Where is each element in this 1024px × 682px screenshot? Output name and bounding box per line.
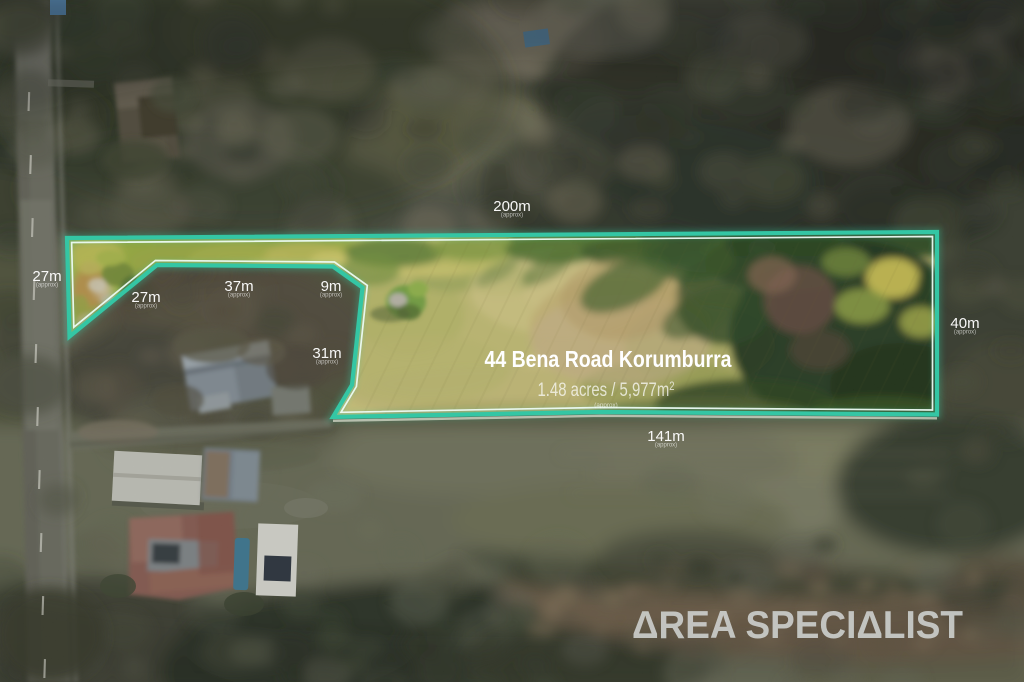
svg-text:(approx): (approx) [228,292,250,298]
svg-text:(approx): (approx) [36,282,58,288]
svg-text:(approx): (approx) [316,359,338,365]
svg-text:1.48 acres / 5,977m2: 1.48 acres / 5,977m2 [538,379,675,401]
svg-text:(approx): (approx) [501,212,523,218]
svg-text:(approx): (approx) [320,292,342,298]
svg-text:(approx): (approx) [655,442,677,448]
svg-text:ΔREA SPECIΔLIST: ΔREA SPECIΔLIST [632,604,963,647]
svg-text:(approx): (approx) [594,402,617,409]
svg-text:44 Bena Road Korumburra: 44 Bena Road Korumburra [485,346,733,372]
svg-text:(approx): (approx) [135,303,157,309]
svg-text:(approx): (approx) [954,329,976,335]
